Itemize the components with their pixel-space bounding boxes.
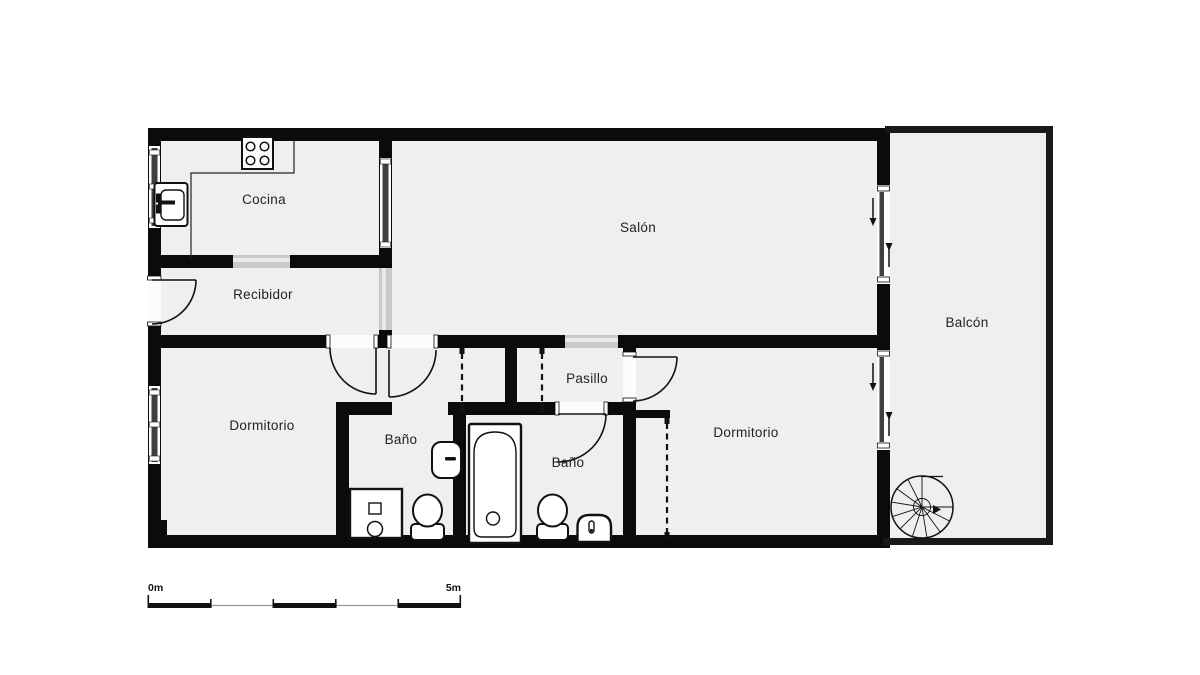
scale-bar: 0m 5m [148,582,462,608]
scale-bar-tick [398,599,400,608]
room-label-recibidor: Recibidor [233,287,293,302]
door-jamb [555,402,559,415]
scale-start-label: 0m [148,582,163,594]
dormitorio1-door-opening [329,335,375,348]
scale-bar-tick [335,599,337,608]
toilet-icon [537,495,568,541]
balcony-wall [1046,126,1053,545]
bano2-door-opening [558,402,605,415]
stove-icon [242,137,273,169]
wall-pillar [148,520,167,548]
balcony-floor [883,133,1046,538]
bano1-door-opening [390,335,435,348]
scale-bar-segment [273,603,336,608]
window-strip [380,158,391,248]
passage-highlight [565,338,618,342]
front-door-opening [148,279,161,323]
floor-plan-page: Cocina Recibidor Salón Balcón Dormitorio… [0,0,1200,675]
room-label-pasillo: Pasillo [566,371,608,386]
wall-segment [148,335,890,348]
scale-bar-segment [148,603,211,608]
door-jamb [434,335,438,348]
door-jamb [374,335,378,348]
dormitorio2-door-opening [623,355,636,399]
passage-highlight [382,268,386,330]
shower-unit-icon [350,489,402,538]
scale-bar-tick [148,595,150,608]
room-label-salon: Salón [620,220,656,235]
door-jamb [387,335,391,348]
room-label-balcon: Balcón [945,315,988,330]
balcony-wall [883,538,1053,545]
door-jamb [326,335,330,348]
bathtub-icon [469,424,521,543]
room-label-dormitorio-der: Dormitorio [713,425,778,440]
wall-segment [505,335,517,415]
washbasin-icon [432,442,461,478]
toilet-icon [411,495,444,541]
floor-plan-canvas: Cocina Recibidor Salón Balcón Dormitorio… [0,0,1200,675]
wall-segment [633,410,670,418]
scale-bar-tick [273,599,275,608]
door-jamb [604,402,608,415]
balcony-wall [885,126,1053,133]
window-strip [149,386,160,464]
scale-bar-tick [460,595,462,608]
room-label-bano-2: Baño [552,455,585,470]
room-label-cocina: Cocina [242,192,286,207]
bidet-icon [578,515,612,542]
room-label-bano-1: Baño [385,432,418,447]
wall-segment [336,402,349,548]
passage-highlight [233,258,290,262]
scale-bar-tick [210,599,212,608]
scale-bar-segment [398,603,461,608]
room-label-dormitorio-izq: Dormitorio [229,418,294,433]
kitchen-sink-icon [155,183,188,226]
scale-end-label: 5m [446,582,461,594]
door-jamb [623,352,636,356]
